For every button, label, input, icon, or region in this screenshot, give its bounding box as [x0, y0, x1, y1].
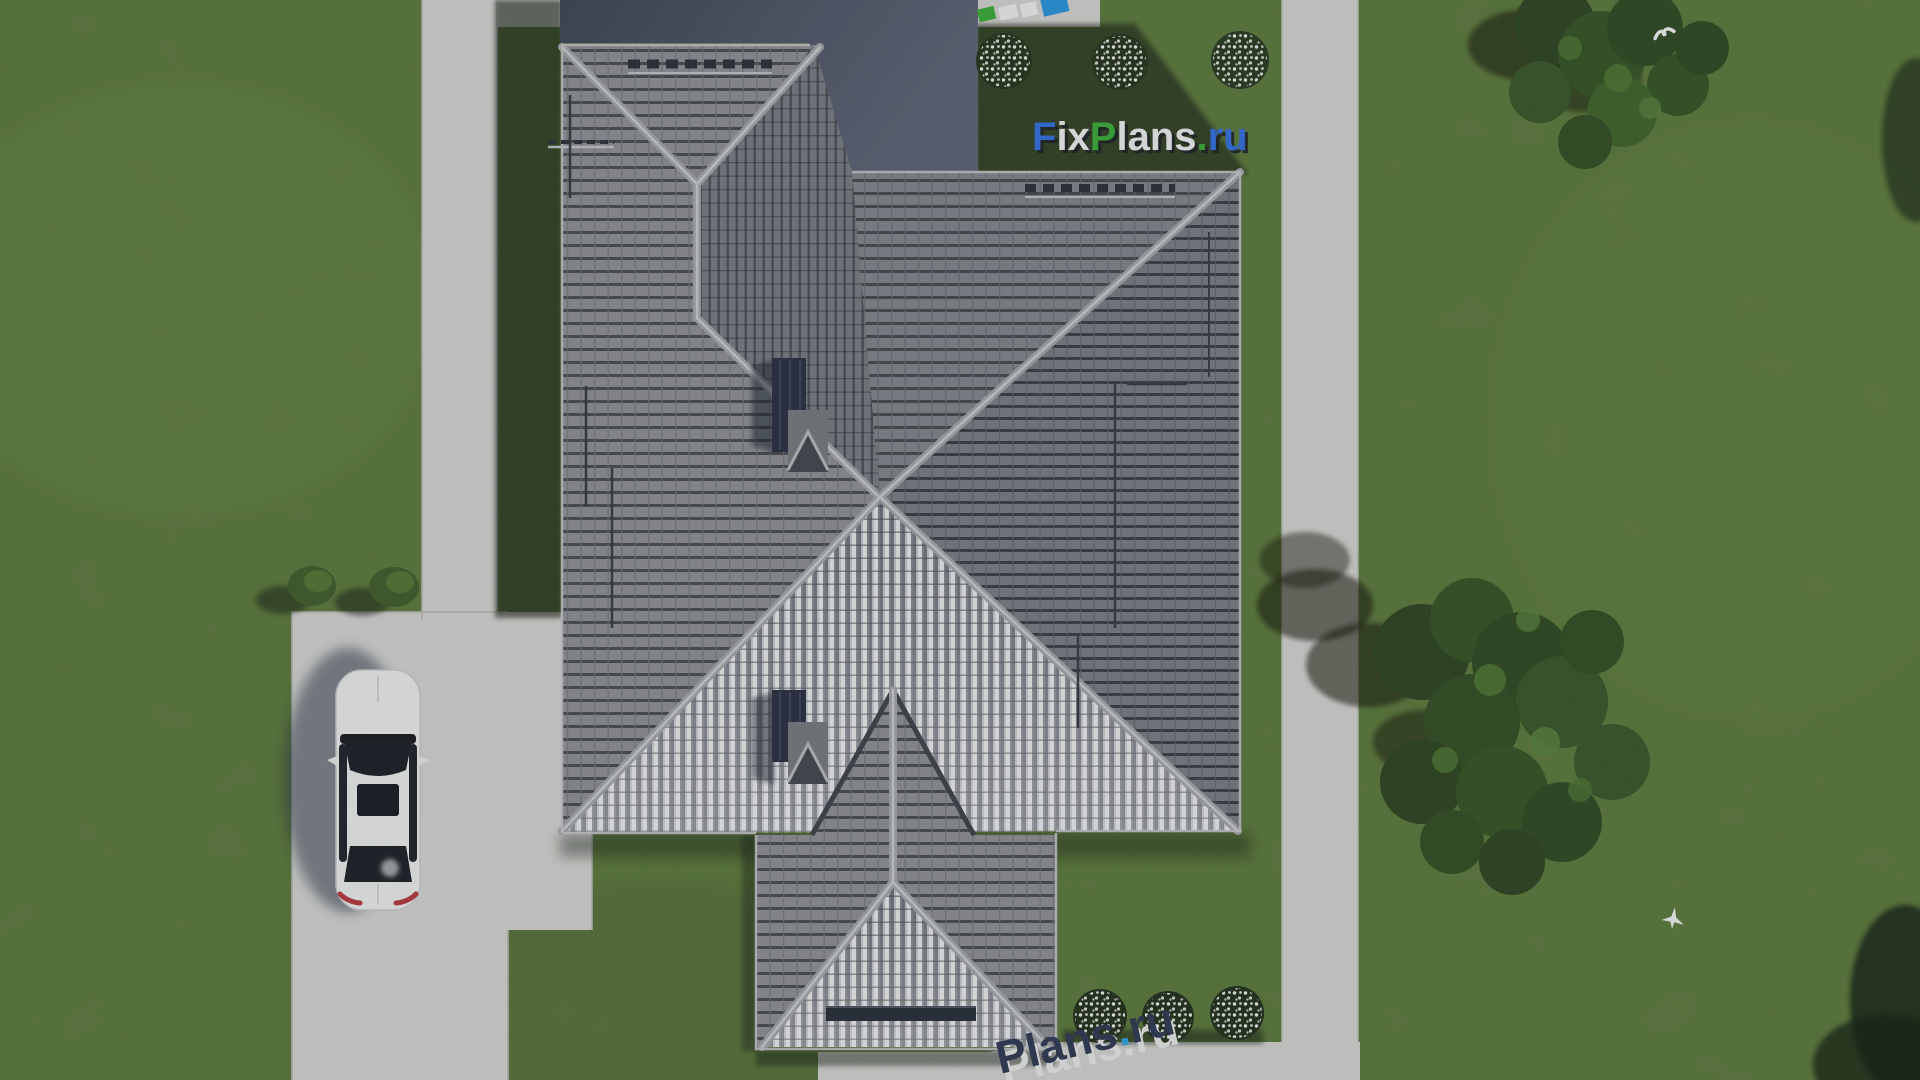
tree-highlight [1530, 727, 1560, 757]
walkway-left [422, 0, 497, 620]
bush-highlight [386, 571, 414, 593]
bush-top-2 [1092, 34, 1148, 90]
bush-highlight [304, 570, 332, 592]
chimney-shadow [752, 692, 774, 784]
tree-foliage [1675, 21, 1729, 75]
tree-highlight [1474, 664, 1506, 696]
tree-highlight [1639, 97, 1661, 119]
bush-flowers [1212, 988, 1262, 1038]
house-shadow-left [495, 0, 562, 618]
car-rear-window-glare [381, 859, 399, 877]
bush-flowers [1094, 36, 1146, 88]
car-side-glass-left [339, 744, 347, 862]
tree-highlight [1432, 747, 1458, 773]
car-rear-window [344, 846, 412, 882]
car-windshield [344, 740, 412, 776]
tree-shadow [1260, 532, 1350, 588]
car-sunroof [357, 784, 399, 816]
tree-foliage [1560, 610, 1624, 674]
extension-snow-guard [826, 1007, 976, 1021]
bush-bottom-3 [1210, 986, 1264, 1040]
bush-flowers [978, 35, 1030, 87]
fixplans-watermark: FixPlans.ru FixPlans.ru [1032, 115, 1251, 162]
tree-foliage [1420, 810, 1484, 874]
tree-highlight [1558, 36, 1582, 60]
bush-top-1 [976, 33, 1032, 89]
tree-highlight [1604, 64, 1632, 92]
site-render: FixPlans.ru FixPlans.ru Plans.ru Plans.r… [0, 0, 1920, 1080]
tree-highlight [1516, 608, 1540, 632]
fixplans-watermark-text: FixPlans.ru [1032, 115, 1248, 159]
tree-foliage [1558, 115, 1612, 169]
bush-flowers [1213, 33, 1267, 87]
car [284, 648, 429, 912]
chimney-shadow [752, 360, 774, 452]
bush-top-3 [1211, 31, 1269, 89]
bushes-top [976, 31, 1269, 90]
tree-highlight [1568, 778, 1592, 802]
tree-foliage [1509, 61, 1571, 123]
car-side-glass-right [409, 744, 417, 862]
tree-foliage [1479, 829, 1545, 895]
